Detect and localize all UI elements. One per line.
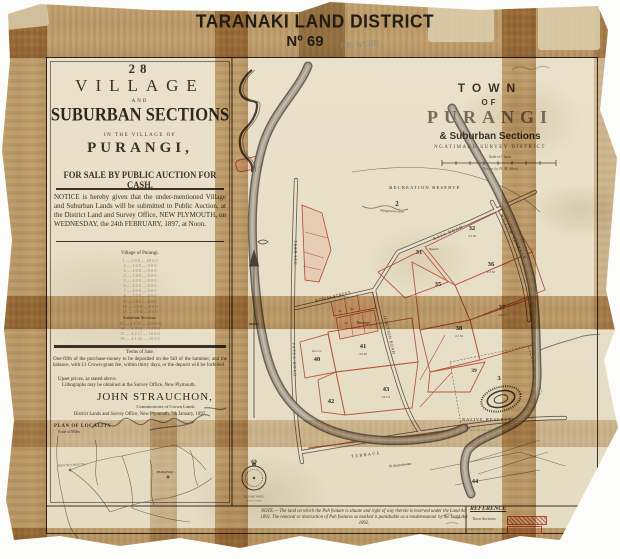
terms-heading: Terms of Sale.	[50, 350, 230, 356]
area-41: 3 0 20	[359, 352, 367, 356]
section-35: 35	[435, 281, 442, 288]
rule	[56, 241, 224, 242]
torn-tape-patch	[428, 2, 494, 42]
label-recreation-reserve: RECREATION RESERVE	[389, 185, 460, 190]
terms-upset: Upset prices, as stated above.	[58, 377, 117, 383]
label-reserve-40: Reserve	[311, 349, 322, 353]
section-41: 41	[360, 343, 367, 350]
signature-title: Commissioner of Crown Lands.	[110, 404, 222, 409]
section-44: 44	[472, 478, 479, 485]
map-title-town: TOWN	[410, 82, 570, 96]
label-terrace-south: TERRACE	[351, 450, 381, 459]
section-40: 40	[314, 356, 321, 363]
paper-sheet: ♛ S COOKE WHITE PHOTO LITHO RECREATI	[0, 0, 620, 559]
section-43: 43	[383, 386, 390, 393]
map-drawn-by: Drawn by H. M. Skeet	[440, 167, 560, 172]
map-title-subsections: & Suburban Sections	[410, 131, 570, 143]
signature: JOHN STRAUCHON,	[80, 391, 230, 404]
section-32: 32	[469, 225, 476, 232]
office-line: District Lands and Survey Office, New Pl…	[50, 412, 230, 418]
notice-purangi: PURANGI,	[50, 140, 230, 157]
terms-body: One-fifth of the purchase-money to be de…	[53, 356, 227, 369]
locality-plan-art	[57, 436, 212, 538]
area-38: 4 1 32	[455, 334, 463, 338]
rule	[56, 188, 224, 190]
section-2: 2	[395, 200, 399, 208]
label-stream: Mangatotara Strm	[379, 208, 405, 214]
map-title-purangi: PURANGI	[410, 107, 570, 128]
section-39: 39	[471, 368, 477, 374]
label-rata-road: RATA ROAD	[432, 224, 464, 241]
village-of-heading: Village of Purangi.	[50, 251, 230, 257]
label-terrace-west: TERRACE	[293, 240, 298, 265]
section-31: 31	[416, 249, 423, 256]
notice-body: NOTICE is hereby given that the under-me…	[54, 193, 226, 229]
notice-village: VILLAGE	[50, 76, 230, 96]
area-43: 10 1 0	[382, 395, 390, 399]
header-district-stamp: TARANAKI LAND DISTRICT	[193, 11, 438, 33]
notice-count: 28	[50, 62, 230, 77]
notice-suburban: SUBURBAN SECTIONS	[50, 105, 230, 127]
tape-strip	[150, 412, 177, 559]
tape-strip	[0, 0, 47, 559]
seal-caption-2: PHOTO LITHO	[246, 500, 262, 503]
footer-note: NOTE.— The land on which the Pah feature…	[258, 509, 470, 527]
reference-item-1: Town Sections	[472, 517, 496, 522]
label-ngaere: Ngaere	[428, 247, 440, 251]
section-36: 36	[488, 261, 495, 268]
rule	[54, 345, 226, 348]
tape-strip	[215, 0, 248, 559]
torn-tape-patch	[538, 4, 600, 50]
terms-lithographs: Lithographs may be obtained at the Surve…	[62, 383, 196, 389]
area-36: 0 3 32	[487, 270, 495, 274]
section-3: 3	[497, 375, 501, 382]
map-title-of: OF	[410, 98, 570, 107]
map-scale-label: Scale of Chains	[440, 155, 560, 159]
map-district-line: NGATIMARU SURVEY DISTRICT	[410, 145, 570, 151]
reference-heading: REFERENCE	[470, 506, 506, 513]
tape-strip	[0, 528, 575, 559]
notice-in-village-of: IN THE VILLAGE OF	[50, 133, 230, 139]
section-42: 42	[328, 398, 335, 405]
area-32: 4 3 20	[468, 234, 476, 238]
scanned-map-document: ♛ S COOKE WHITE PHOTO LITHO RECREATI	[0, 0, 620, 559]
tape-strip	[502, 0, 536, 559]
torn-tape-patch	[1, 0, 49, 30]
label-te-aroputewata: Te Aroputewata	[389, 462, 412, 469]
